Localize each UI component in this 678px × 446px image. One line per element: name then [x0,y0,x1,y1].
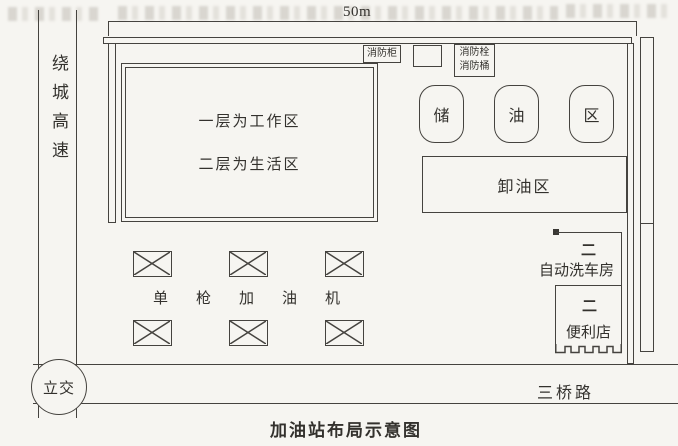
fuel-dispenser-box [133,320,172,346]
fire-cabinet-box: 消防柜 [363,45,401,63]
car-wash-top-line [556,232,622,233]
fire-hydrant-label: 消防栓 [455,46,494,60]
dispenser-row-label: 单枪加油机 [153,287,368,308]
dimension-tick-left [108,21,109,36]
interchange-circle: 立交 [31,359,87,415]
left-road-label: 绕城高速 [48,54,68,170]
bottom-road-line-upper [33,364,678,365]
station-building-inner-border [125,67,374,218]
storage-tank-1-label: 储 [433,102,449,126]
car-wash-door-symbol: 二 [581,239,596,260]
dimension-label: 50m [343,4,371,21]
storage-tank-1: 储 [419,85,464,143]
car-wash-label: 自动洗车房 [539,259,614,280]
store-label: 便利店 [566,321,611,342]
fuel-dispenser-box [325,320,364,346]
fire-hydrant-bucket-box: 消防栓 消防桶 [454,44,495,77]
bottom-road-line-lower [33,403,678,404]
print-bleed-artifact [8,7,100,21]
print-bleed-artifact [118,6,558,20]
site-wall-top [103,37,632,44]
fuel-dispenser-box [229,251,268,277]
convenience-store-box: 二 便利店 [555,285,622,345]
dimension-tick-right [636,21,637,36]
bottom-road-label: 三桥路 [537,379,594,403]
fuel-dispenser-box [325,251,364,277]
fire-cabinet-label: 消防柜 [367,48,397,59]
fire-bucket-label: 消防桶 [455,60,494,74]
small-utility-box [413,45,442,67]
storage-tank-3: 区 [569,85,614,143]
station-building: 一层为工作区 二层为生活区 [121,63,378,222]
dimension-line [108,21,637,22]
fuel-dispenser-box [229,320,268,346]
store-crenellated-edge [555,344,622,354]
storage-tank-2: 油 [494,85,539,143]
site-wall-left [108,43,116,223]
site-side-strip [640,37,654,352]
building-floor1-label: 一层为工作区 [122,110,377,131]
unloading-zone: 卸油区 [422,156,627,213]
storage-tank-3-label: 区 [583,102,599,126]
site-side-strip-divider [640,223,654,224]
site-wall-right [627,43,634,364]
gas-station-layout-diagram: 绕城高速 三桥路 立交 50m 一层为工作区 二层为生活区 消防柜 消防栓 消防… [0,0,678,446]
building-floor2-label: 二层为生活区 [122,153,377,174]
fuel-dispenser-box [133,251,172,277]
storage-tank-2-label: 油 [508,102,524,126]
car-wash-right-line [621,232,622,285]
figure-title: 加油站布局示意图 [0,416,678,441]
left-road-line-outer [38,10,39,418]
interchange-label: 立交 [43,377,75,398]
unloading-zone-label: 卸油区 [497,173,551,197]
print-bleed-artifact [566,4,672,18]
store-door-symbol: 二 [582,295,597,316]
left-road-line-inner [76,10,77,418]
